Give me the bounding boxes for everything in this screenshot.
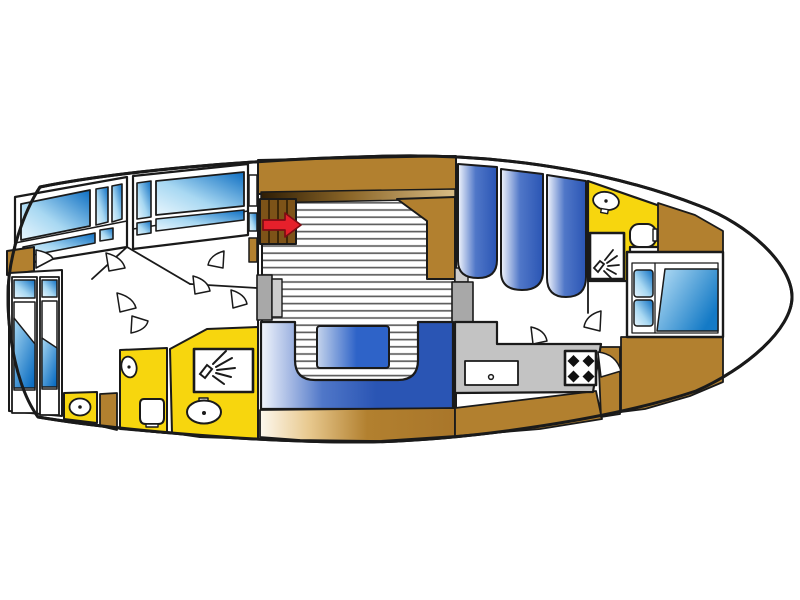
galley-sink [465, 361, 518, 385]
tap [601, 209, 609, 214]
toilet [140, 399, 164, 424]
pillar [257, 275, 272, 320]
window-pane [96, 187, 108, 225]
pillar [452, 282, 473, 323]
toilet-tank [653, 229, 657, 241]
window-pane [137, 221, 151, 235]
cabinet [100, 393, 117, 430]
saloon [458, 164, 586, 297]
settee [501, 169, 543, 290]
stove [565, 351, 596, 385]
drain [489, 375, 494, 380]
cockpit [261, 322, 453, 409]
pillow [634, 300, 653, 326]
window-pane [137, 181, 151, 219]
pillow [634, 270, 653, 297]
settee [547, 175, 586, 297]
toilet [630, 224, 656, 247]
coachroof-band [258, 156, 456, 194]
panel [249, 238, 257, 262]
boat-floor-plan [0, 0, 800, 600]
duvet [657, 269, 718, 331]
panel [249, 175, 257, 206]
window-pane [249, 213, 257, 231]
bulkhead-fragments [249, 175, 257, 262]
berth-pillow [42, 280, 57, 297]
locker [621, 337, 723, 412]
window-pane [100, 228, 113, 241]
settee [458, 164, 497, 278]
pillar [272, 279, 282, 317]
berth-pillow [14, 280, 35, 298]
side-deck-band [260, 408, 455, 441]
window-pane [112, 184, 122, 222]
cockpit-table [317, 326, 389, 368]
shower-tray [590, 233, 624, 279]
